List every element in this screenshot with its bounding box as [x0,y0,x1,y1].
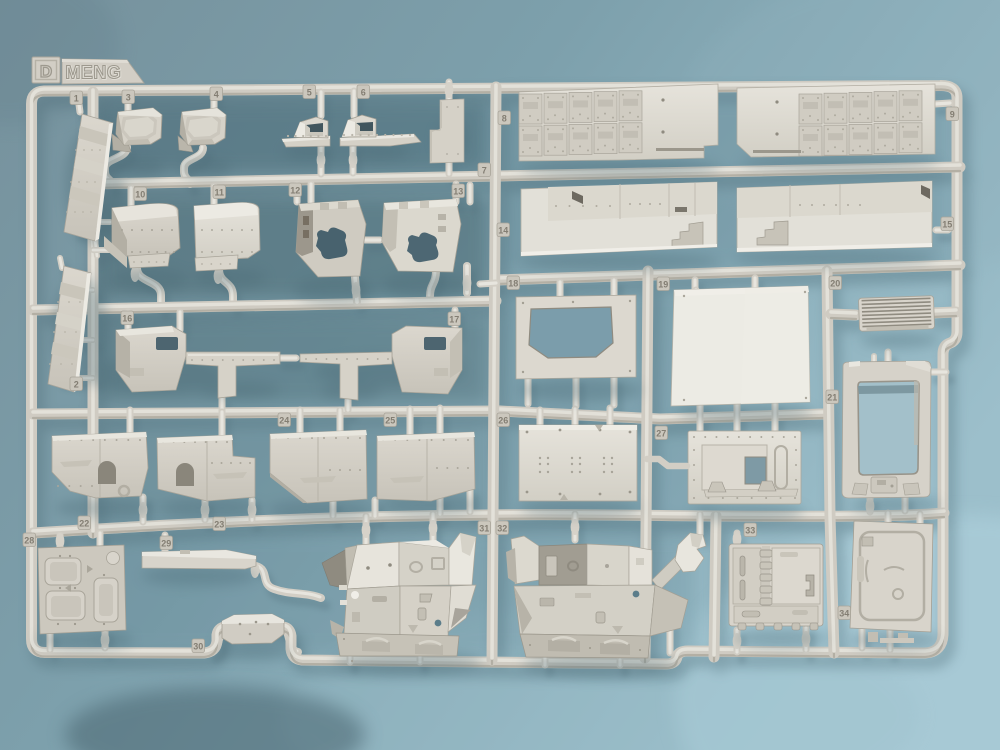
svg-text:17: 17 [449,314,459,324]
svg-text:D: D [40,62,52,81]
svg-text:1: 1 [74,93,79,103]
svg-text:29: 29 [161,538,171,548]
svg-text:27: 27 [656,428,666,438]
svg-text:4: 4 [214,89,219,99]
svg-text:9: 9 [950,109,955,119]
svg-text:15: 15 [942,219,952,229]
svg-text:19: 19 [658,279,668,289]
svg-text:2: 2 [74,379,79,389]
svg-text:33: 33 [745,525,755,535]
svg-text:32: 32 [497,523,507,533]
svg-text:13: 13 [453,186,463,196]
svg-text:8: 8 [502,113,507,123]
svg-text:22: 22 [79,518,89,528]
svg-text:14: 14 [498,225,508,235]
svg-text:16: 16 [122,313,132,323]
svg-text:30: 30 [193,641,203,651]
svg-text:6: 6 [361,87,366,97]
svg-text:23: 23 [214,519,224,529]
svg-text:28: 28 [24,535,34,545]
svg-text:25: 25 [385,415,395,425]
svg-text:3: 3 [126,92,131,102]
svg-text:24: 24 [279,415,289,425]
svg-text:11: 11 [214,187,224,197]
svg-text:MENG: MENG [65,62,121,82]
svg-text:34: 34 [839,608,849,618]
svg-text:31: 31 [479,523,489,533]
svg-text:18: 18 [508,278,518,288]
svg-text:7: 7 [482,165,487,175]
svg-text:26: 26 [498,415,508,425]
svg-text:21: 21 [827,392,837,402]
svg-text:20: 20 [830,278,840,288]
svg-text:10: 10 [135,189,145,199]
svg-text:12: 12 [290,185,300,195]
svg-text:5: 5 [307,87,312,97]
